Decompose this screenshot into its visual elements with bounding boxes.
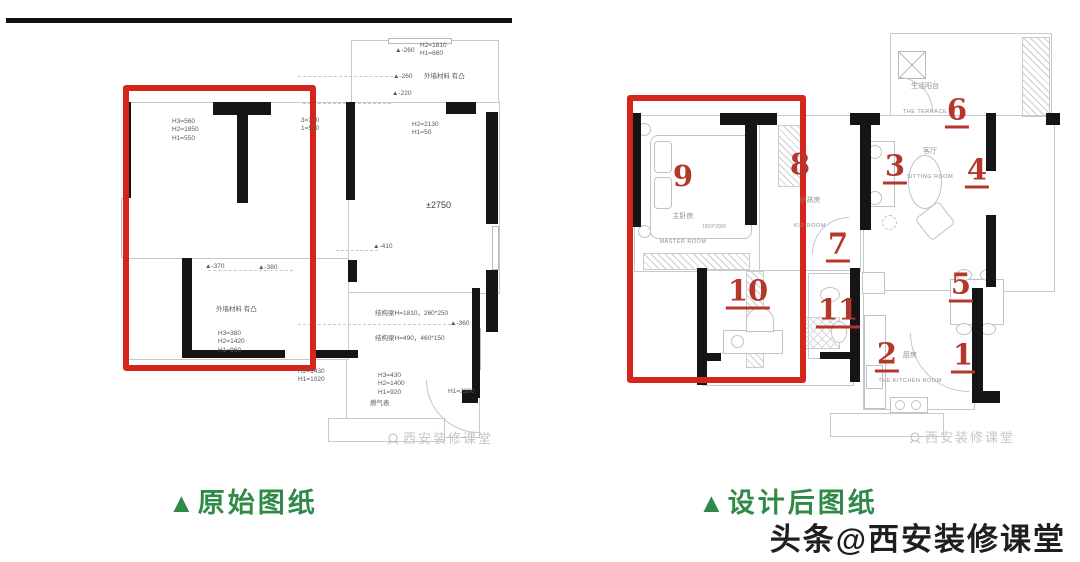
dim-annotation: ▲-260 xyxy=(393,73,412,81)
dim-annotation: H3=560 H2=1850 H1=550 xyxy=(172,118,199,143)
leader-line xyxy=(336,250,378,251)
room-marker-4: 4 xyxy=(965,156,989,189)
dim-annotation: H2=1810 H1=660 xyxy=(420,42,447,59)
dim-annotation: H1=2200 xyxy=(448,388,475,396)
dim-annotation: ▲-220 xyxy=(392,90,411,98)
beam-annotation: 结构梁H=490，460*150 xyxy=(375,335,445,343)
wall-segment xyxy=(446,102,476,114)
wall-segment xyxy=(860,125,871,230)
dim-annotation: 外墙材料 有凸 xyxy=(424,73,465,81)
wall-segment xyxy=(314,350,358,358)
watermark-icon xyxy=(908,431,922,445)
watermark: 西安装修课堂 xyxy=(386,428,493,447)
dim-annotation: ▲-380 xyxy=(258,264,277,272)
room-label-en: SITTING ROOM xyxy=(907,174,953,180)
room-marker-9: 9 xyxy=(671,162,695,192)
room-label-terrace: 生活阳台 THE TERRACE xyxy=(903,63,947,133)
dim-annotation: ▲-360 xyxy=(450,320,469,328)
highlight-box-original xyxy=(123,85,316,371)
wall-segment xyxy=(820,352,856,359)
byline-watermark: 头条@西安装修课堂 xyxy=(770,514,1066,559)
room-label-en: MASTER ROOM xyxy=(659,239,706,245)
room-label-en: THE KITCHEN ROOM xyxy=(878,378,941,384)
floorplan-after: 1800*2000 xyxy=(598,25,1060,465)
fridge xyxy=(862,272,885,294)
wall-segment xyxy=(850,113,880,125)
wall-segment xyxy=(346,102,355,200)
room-marker-6: 6 xyxy=(945,96,969,129)
room-marker-3: 3 xyxy=(883,152,907,185)
wall-segment xyxy=(972,391,1000,403)
room-marker-7: 7 xyxy=(826,230,850,263)
room-label-kid: 小孩房 KID ROOM xyxy=(794,177,826,247)
level-annotation: ±2750 xyxy=(426,200,451,212)
dim-annotation: H2=2130 H1=50 xyxy=(412,121,439,138)
dim-annotation: 3=370 1=540 xyxy=(301,117,319,134)
dim-annotation: H3=430 H2=1400 H1=920 xyxy=(378,372,405,397)
room-marker-11: 11 xyxy=(816,296,860,329)
room-marker-1: 1 xyxy=(951,341,975,374)
window xyxy=(492,226,499,270)
room-marker-2: 2 xyxy=(875,340,899,373)
wall-segment xyxy=(486,112,498,224)
leader-line xyxy=(298,324,456,325)
room-label-en: THE TERRACE xyxy=(903,109,947,115)
wall-segment xyxy=(986,215,996,287)
room-label-master: 主卧房 MASTER ROOM xyxy=(659,193,706,263)
watermark: 西安装修课堂 xyxy=(908,427,1015,446)
watermark-text: 西安装修课堂 xyxy=(403,431,493,446)
wall-segment xyxy=(486,270,498,332)
leader-line xyxy=(298,76,393,77)
room-label-cn: 小孩房 xyxy=(794,195,826,205)
wall-segment xyxy=(348,260,357,282)
watermark-icon xyxy=(386,432,400,446)
highlight-box-after xyxy=(627,95,806,383)
screenshot-root: ▲-260 H2=1810 H1=660 ▲-260 外墙材料 有凸 ▲-220… xyxy=(0,0,1080,562)
room-label-cn: 生活阳台 xyxy=(903,81,947,91)
room-label-cn: 主卧房 xyxy=(659,211,706,221)
room-label-sitting: 客厅 SITTING ROOM xyxy=(907,128,953,198)
room-marker-8: 8 xyxy=(788,150,812,180)
dim-annotation: 外墙材料 有凸 xyxy=(216,306,257,314)
dim-annotation: H2=1430 H1=1020 xyxy=(298,368,325,385)
room-marker-10: 10 xyxy=(726,277,770,310)
room-label-en: KID ROOM xyxy=(794,223,826,229)
dim-annotation: ▲-370 xyxy=(205,263,224,271)
dim-annotation: ▲-260 xyxy=(395,47,414,55)
plant-icon xyxy=(882,215,897,230)
wall-segment xyxy=(1046,113,1060,125)
caption-original: ▲原始图纸 xyxy=(168,481,318,520)
dim-annotation: ▲-410 xyxy=(373,243,392,251)
watermark-text: 西安装修课堂 xyxy=(925,430,1015,445)
top-divider-line xyxy=(6,18,512,23)
floorplan-original: ▲-260 H2=1810 H1=660 ▲-260 外墙材料 有凸 ▲-220… xyxy=(58,28,510,465)
gas-meter-label: 燃气表 xyxy=(370,400,390,408)
terrace-cabinet xyxy=(1022,37,1050,117)
dim-annotation: H3=380 H2=1420 H1=960 xyxy=(218,330,245,355)
room-marker-5: 5 xyxy=(949,270,973,303)
beam-annotation: 结构梁H=1810，260*250 xyxy=(375,310,448,318)
room-label-cn: 客厅 xyxy=(907,146,953,156)
